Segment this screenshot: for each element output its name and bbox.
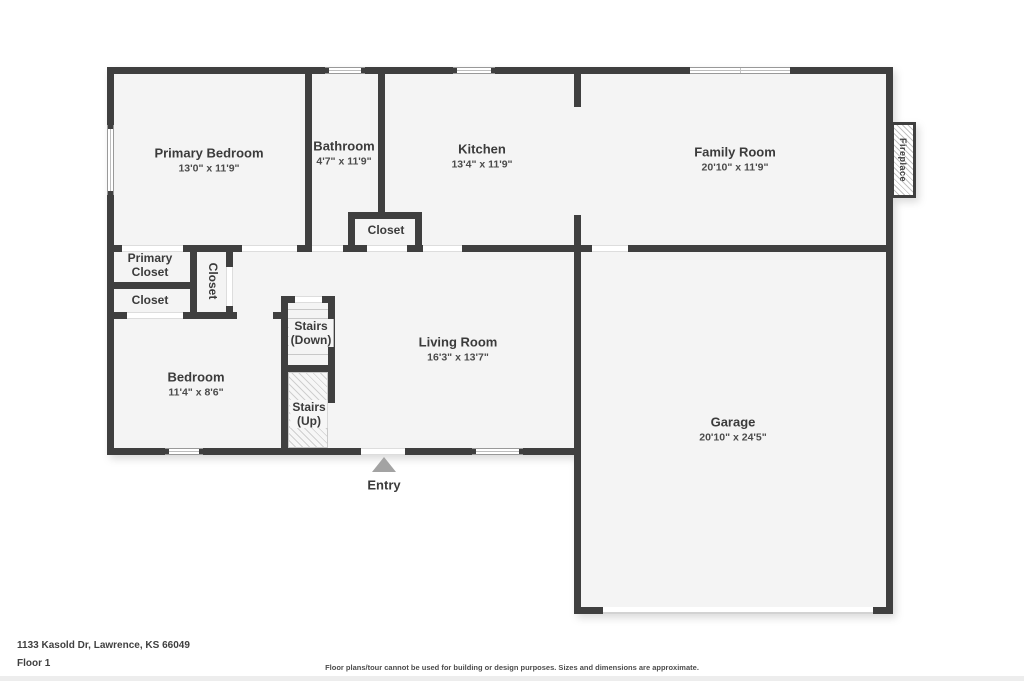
closet-label-primary: Primary Closet xyxy=(117,251,183,279)
fireplace-label: Fireplace xyxy=(898,138,908,182)
room-label-primary-bedroom: Primary Bedroom 13'0" x 11'9" xyxy=(154,146,263,175)
entry-arrow-icon xyxy=(372,457,396,472)
bottom-strip xyxy=(0,676,1024,681)
room-label-bathroom: Bathroom 4'7" x 11'9" xyxy=(313,139,374,168)
closet-label-left: Closet xyxy=(132,293,169,307)
entry-label: Entry xyxy=(367,478,400,493)
stairs-down-label: Stairs (Down) xyxy=(289,319,334,347)
room-label-family-room: Family Room 20'10" x 11'9" xyxy=(694,145,776,174)
room-label-garage: Garage 20'10" x 24'5" xyxy=(699,415,767,444)
address-text: 1133 Kasold Dr, Lawrence, KS 66049 xyxy=(17,640,190,651)
stairs-up-label: Stairs (Up) xyxy=(290,400,327,428)
closet-label-hall: Closet xyxy=(368,223,405,237)
room-label-bedroom: Bedroom 11'4" x 8'6" xyxy=(167,370,224,399)
closet-label-vertical: Closet xyxy=(206,263,220,300)
room-label-kitchen: Kitchen 13'4" x 11'9" xyxy=(451,142,512,171)
room-label-living-room: Living Room 16'3" x 13'7" xyxy=(419,335,498,364)
floor-plan-labels: Primary Bedroom 13'0" x 11'9" Bathroom 4… xyxy=(0,0,1024,681)
disclaimer-text: Floor plans/tour cannot be used for buil… xyxy=(0,663,1024,672)
floor-plan-canvas: Primary Bedroom 13'0" x 11'9" Bathroom 4… xyxy=(0,0,1024,681)
